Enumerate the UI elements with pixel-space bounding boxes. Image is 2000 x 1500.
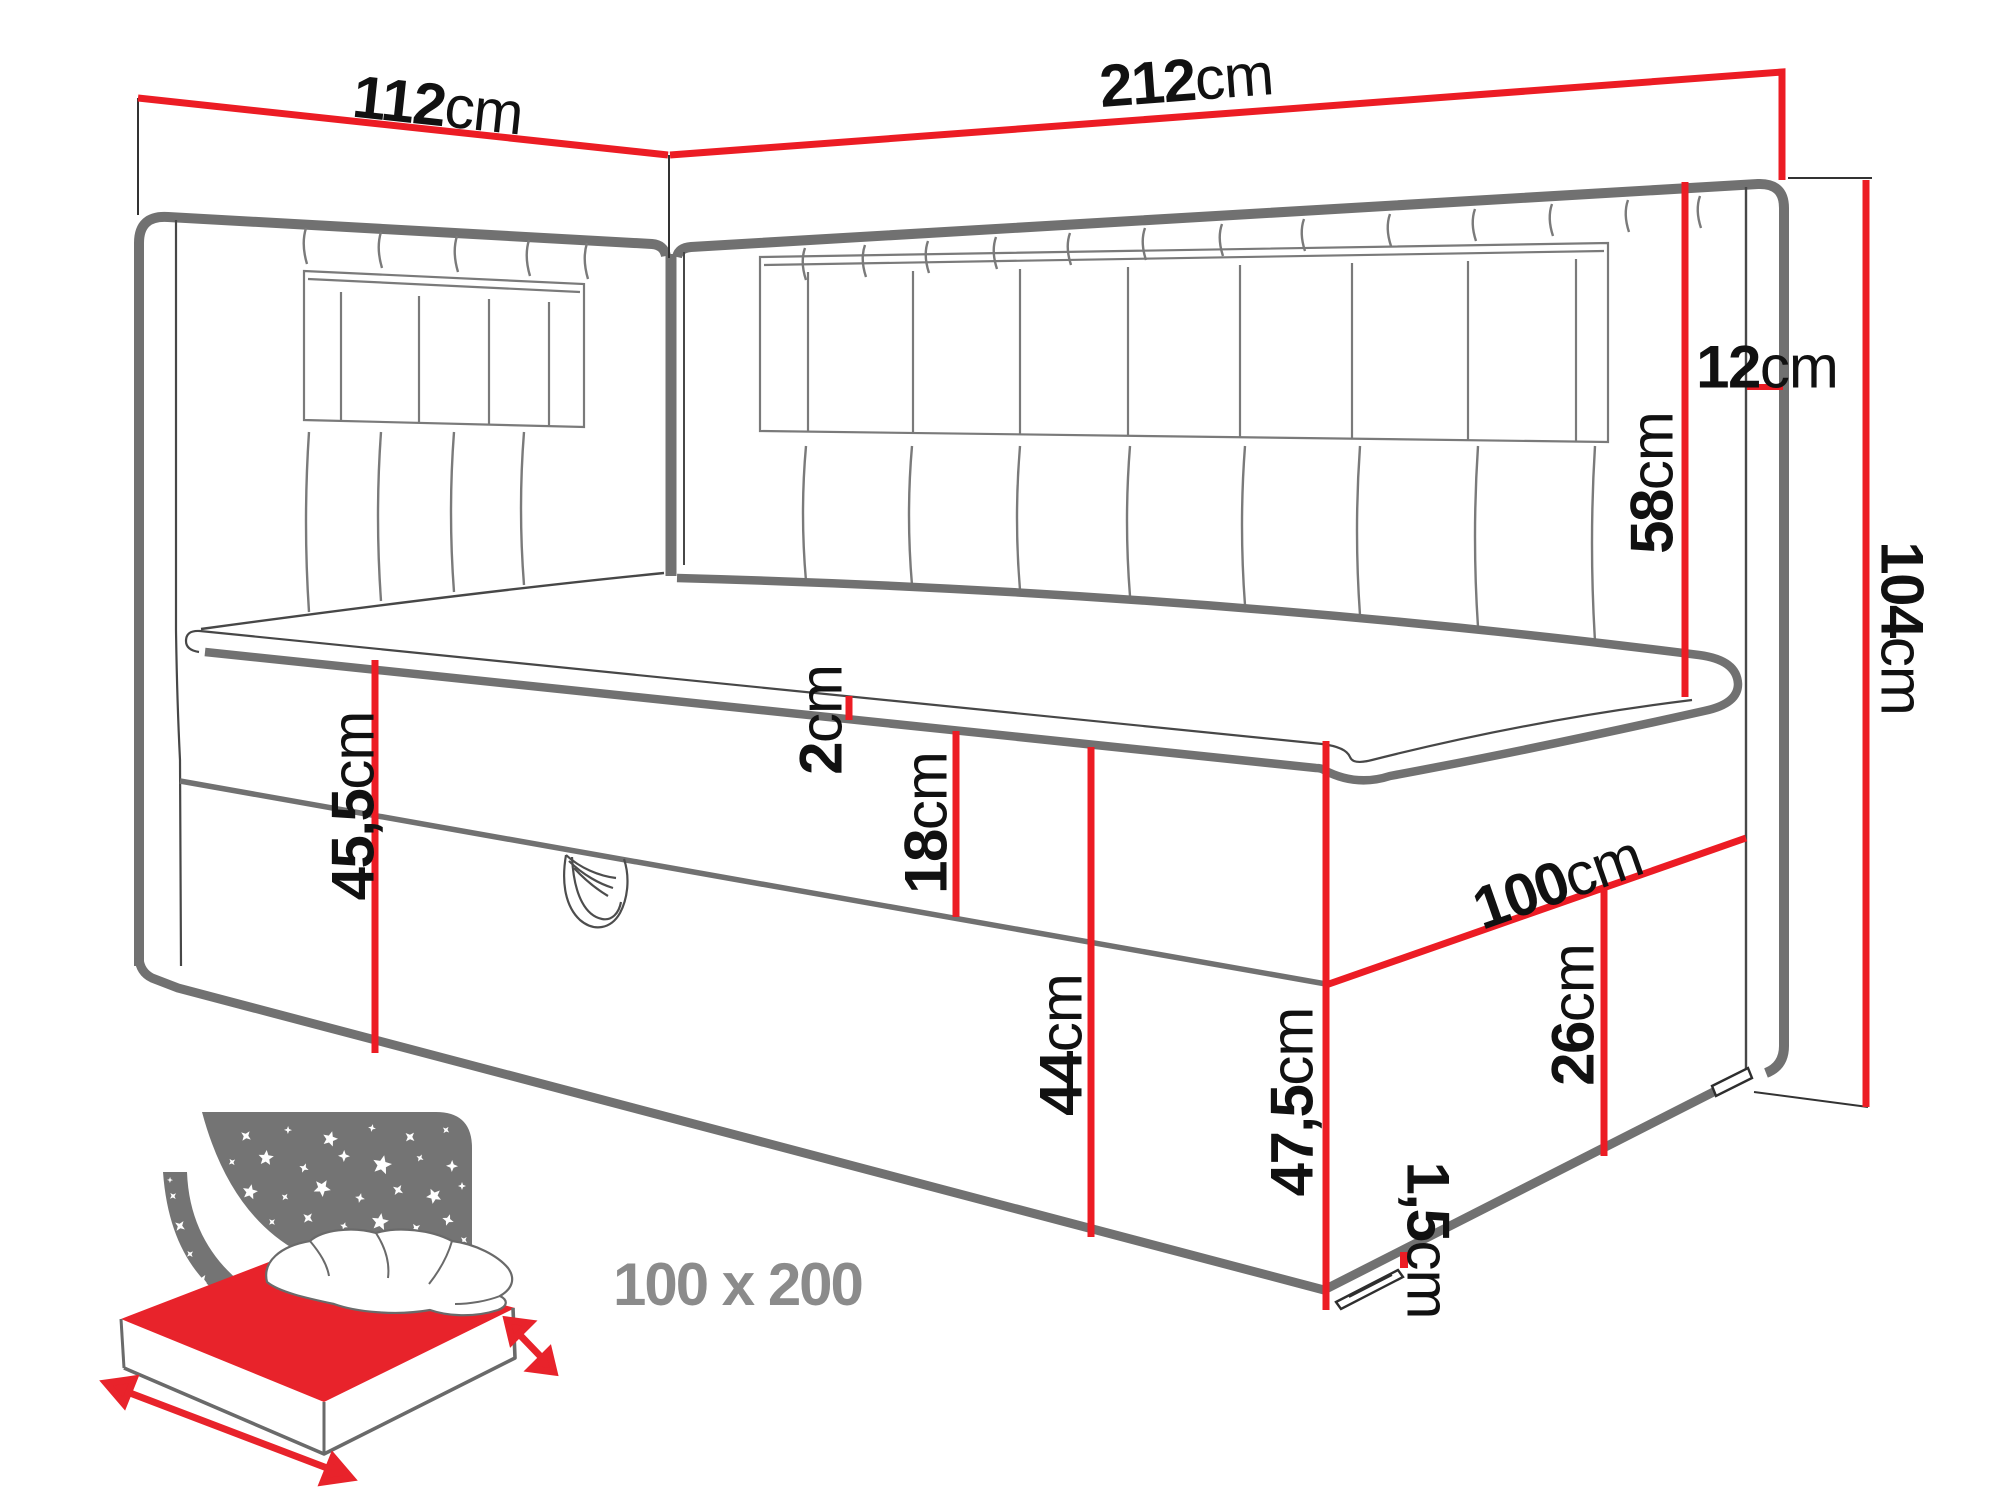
svg-text:2cm: 2cm (788, 665, 855, 775)
svg-text:112cm: 112cm (350, 63, 526, 148)
svg-text:45,5cm: 45,5cm (320, 712, 387, 901)
svg-text:104cm: 104cm (1868, 541, 1935, 715)
svg-text:12cm: 12cm (1696, 334, 1838, 401)
svg-text:1,5cm: 1,5cm (1394, 1162, 1461, 1319)
svg-text:100cm: 100cm (1464, 822, 1650, 943)
svg-text:18cm: 18cm (893, 752, 960, 894)
svg-text:47,5cm: 47,5cm (1259, 1008, 1326, 1197)
svg-text:212cm: 212cm (1097, 40, 1275, 120)
svg-text:26cm: 26cm (1540, 944, 1607, 1086)
svg-text:100 x 200: 100 x 200 (613, 1251, 862, 1318)
svg-text:58cm: 58cm (1619, 412, 1686, 554)
svg-text:44cm: 44cm (1028, 974, 1095, 1116)
